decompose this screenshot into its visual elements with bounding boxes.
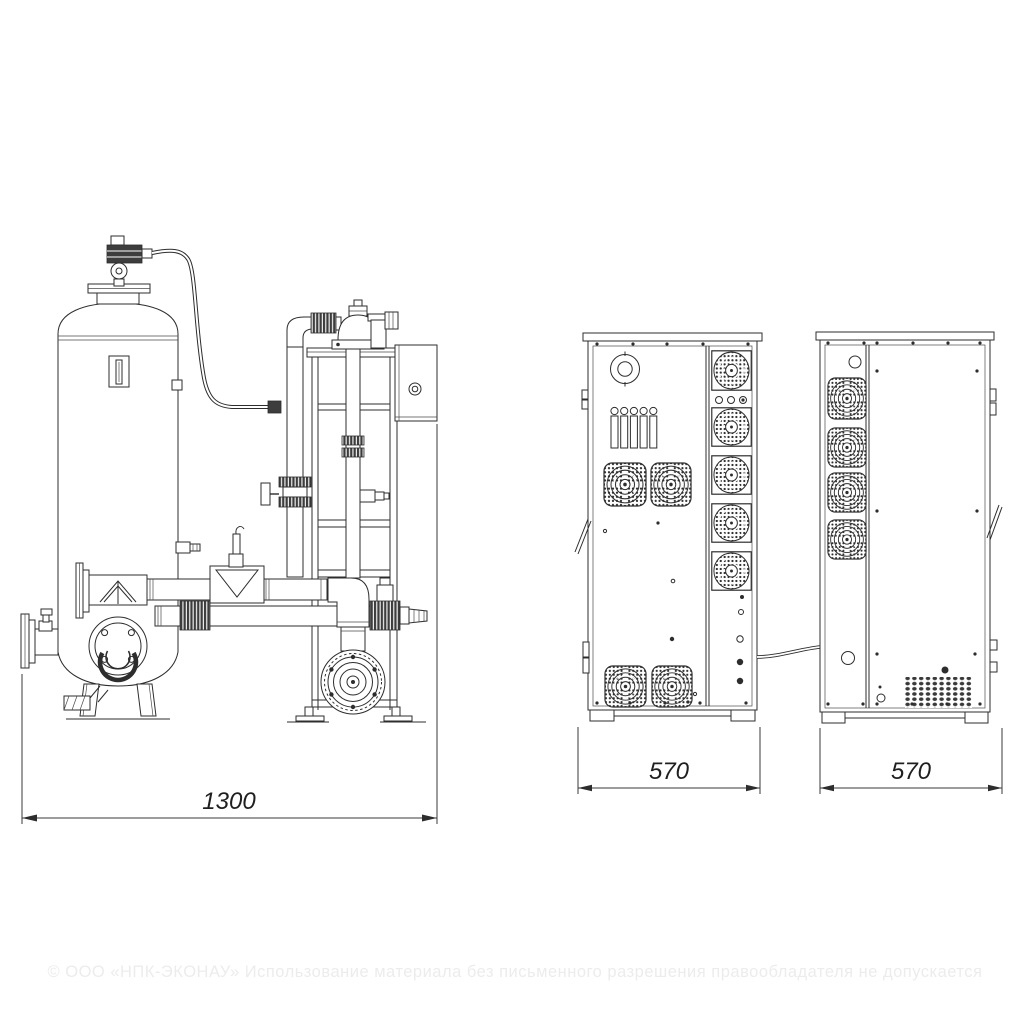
- fan-grille: [652, 666, 692, 707]
- valve-handle: [261, 483, 270, 505]
- control-box: [395, 345, 437, 421]
- front-flange: [89, 617, 147, 675]
- drain-valve-hose-barb: [370, 578, 427, 630]
- union-coupling: [311, 313, 336, 333]
- cabinet-top-cap: [816, 332, 994, 340]
- fan-grille: [651, 463, 691, 506]
- tank-top-valve: [107, 236, 152, 286]
- drawing-canvas: 1300: [0, 0, 1028, 1028]
- fan-grille: [828, 428, 866, 467]
- dimension-570-rear-label: 570: [649, 758, 690, 785]
- cabinet-foot: [590, 710, 614, 721]
- technical-drawing: 1300: [0, 0, 1028, 1028]
- sample-fitting: [368, 312, 398, 348]
- fan-grille: [604, 463, 646, 506]
- tank-leg: [137, 684, 156, 716]
- cabinet-side-view: 570: [816, 332, 1002, 794]
- dimension-570-side-label: 570: [891, 758, 932, 785]
- hinge: [583, 642, 589, 657]
- side-fitting: [176, 542, 190, 553]
- cabinet-foot: [731, 710, 755, 721]
- hinge: [582, 390, 588, 399]
- leveling-foot: [392, 707, 400, 716]
- fan: [712, 351, 751, 390]
- skid-front-view: 1300: [21, 236, 437, 824]
- perforated-vent: [905, 677, 972, 708]
- cabinet-foot: [965, 712, 988, 723]
- inlet-flange: [21, 609, 58, 668]
- tank-neck: [97, 293, 139, 304]
- fan: [712, 408, 751, 446]
- cabinet-rear-view: 570: [575, 333, 762, 794]
- union-coupling: [180, 601, 210, 630]
- fan-grille: [828, 378, 866, 419]
- pump: [321, 650, 385, 714]
- hinge: [582, 400, 588, 409]
- sensor-tee: [210, 527, 264, 603]
- hinge: [583, 658, 589, 673]
- fan: [712, 552, 751, 590]
- dimension-570-rear: 570: [578, 727, 760, 794]
- fan-grille: [828, 473, 866, 512]
- fan: [712, 504, 751, 542]
- leveling-foot: [305, 707, 313, 716]
- copyright-watermark: © ООО «НПК-ЭКОНАУ» Использование материа…: [48, 963, 983, 981]
- center-riser-pipe: [342, 349, 389, 578]
- fan: [712, 456, 751, 494]
- interconnect-cable: [757, 647, 820, 657]
- dimension-1300-label: 1300: [202, 788, 256, 815]
- cabinet-foot: [822, 712, 845, 723]
- fan-grille: [828, 520, 866, 559]
- fan-grille: [605, 666, 646, 707]
- cabinet-top-cap: [583, 333, 762, 341]
- dimension-570-side: 570: [820, 728, 1002, 794]
- ground-lines: [66, 719, 426, 722]
